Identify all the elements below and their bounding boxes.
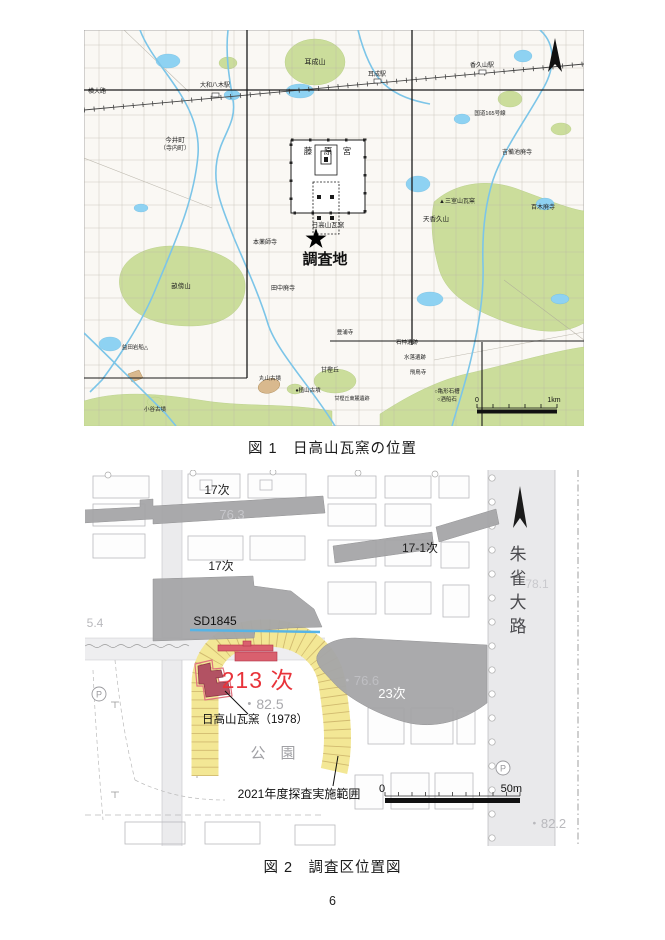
label-sakafuneishi: ○酒船石	[437, 395, 457, 403]
label-masuda-iwafune: 益田岩船△	[122, 343, 149, 351]
label-elev-54: 5.4	[87, 616, 104, 630]
label-momoki-haiji: 百木廃寺	[531, 203, 555, 211]
label-tanaka-haiji: 田中廃寺	[271, 284, 295, 292]
label-mizuochi-iseki: 水落遺跡	[404, 353, 427, 361]
label-survey-site: 調査地	[302, 250, 347, 268]
figure1-caption: 図 1 日高山瓦窯の位置	[0, 437, 665, 458]
label-hidakayama-gayo: 日高山瓦窯	[312, 220, 345, 229]
label-elev-763: 76.3	[219, 507, 244, 522]
label-kibiike-haiji: 吉備池廃寺	[502, 148, 532, 156]
scale-start-label: 0	[475, 397, 479, 404]
label-yokooji: 横大路	[88, 87, 106, 95]
label-moto-yakushiji: 本薬師寺	[253, 238, 277, 246]
label-trench213: 213 次	[222, 667, 295, 693]
figure2-caption: 図 2 調査区位置図	[0, 856, 665, 877]
label-kamegata-sekizo: ○亀形石槽	[434, 387, 460, 395]
label-suzaku-char3: 大	[510, 593, 527, 612]
label-park: 公 園	[250, 745, 295, 762]
label-maruyama-kofun: 丸山古墳	[259, 374, 282, 382]
label-kaguyama-station: 香久山駅	[470, 61, 494, 69]
label-amakaguyama: 天香久山	[423, 214, 449, 223]
label-sd1845: SD1845	[193, 614, 237, 628]
label-elev-766: ・76.6	[341, 673, 379, 688]
label-mimuroyama-gayo: ▲三室山瓦窯	[439, 197, 475, 205]
palace-name-char3: 宮	[343, 146, 352, 156]
page-number: 6	[0, 894, 665, 908]
label-kotani-kofun: 小谷古墳	[144, 405, 167, 413]
label-hidakayama-1978: 日高山瓦窯（1978）	[202, 712, 308, 726]
label-elev-822: ・82.2	[528, 816, 566, 831]
label-survey2021: 2021年度探査実施範囲	[238, 786, 361, 801]
label-yamato-yagi-station: 大和八木駅	[200, 81, 230, 89]
label-miminashi-station: 耳成駅	[368, 70, 386, 78]
figure1-map: 藤 原 宮 横大路 大和八木駅 今井町 （寺内町） 耳成山 耳成駅 香久山駅 国…	[84, 30, 584, 426]
label-amakashi-hill: 甘樫丘	[321, 366, 339, 374]
label-miminashiyama: 耳成山	[305, 57, 326, 66]
palace-name-char2: 原	[324, 146, 333, 156]
label-elev-825: ・82.5	[242, 696, 283, 712]
label-trench17-north: 17次	[204, 483, 229, 497]
label-imaicho-2: （寺内町）	[160, 144, 190, 152]
label-trench17-south: 17次	[208, 559, 233, 573]
palace-name-char1: 藤	[304, 146, 313, 156]
scale-start-label: 0	[379, 783, 385, 795]
report-page: 藤 原 宮 横大路 大和八木駅 今井町 （寺内町） 耳成山 耳成駅 香久山駅 国…	[0, 0, 665, 940]
scale-end-label: 50m	[501, 783, 522, 795]
label-elev-781: 78.1	[525, 577, 549, 591]
label-suzaku-char2: 雀	[510, 569, 527, 588]
label-suzaku-char1: 朱	[510, 545, 527, 564]
parking-icon-right: P	[500, 764, 506, 774]
figure2-map: 17次 17次 17-1次 SD1845 76.3 213 次 日高山瓦窯（19…	[85, 470, 582, 846]
label-unebiyama: 畝傍山	[171, 281, 191, 290]
label-asukadera: 飛鳥寺	[410, 368, 427, 376]
label-ueyama-kofun: ●植山古墳	[295, 386, 321, 394]
scale-end-label: 1km	[547, 397, 560, 404]
label-ishigami-iseki: 石神遺跡	[396, 338, 419, 346]
label-trench23: 23次	[378, 686, 405, 701]
label-toyura-dera: 豊浦寺	[337, 328, 354, 336]
label-suzaku-char4: 路	[510, 617, 527, 636]
label-trench17-1: 17-1次	[402, 541, 438, 555]
label-amakashi-toroku: 甘樫丘東麓遺跡	[334, 395, 369, 402]
label-imaicho-1: 今井町	[165, 135, 185, 144]
parking-icon-left: P	[96, 690, 102, 700]
label-route165: 国道165号線	[474, 109, 506, 117]
